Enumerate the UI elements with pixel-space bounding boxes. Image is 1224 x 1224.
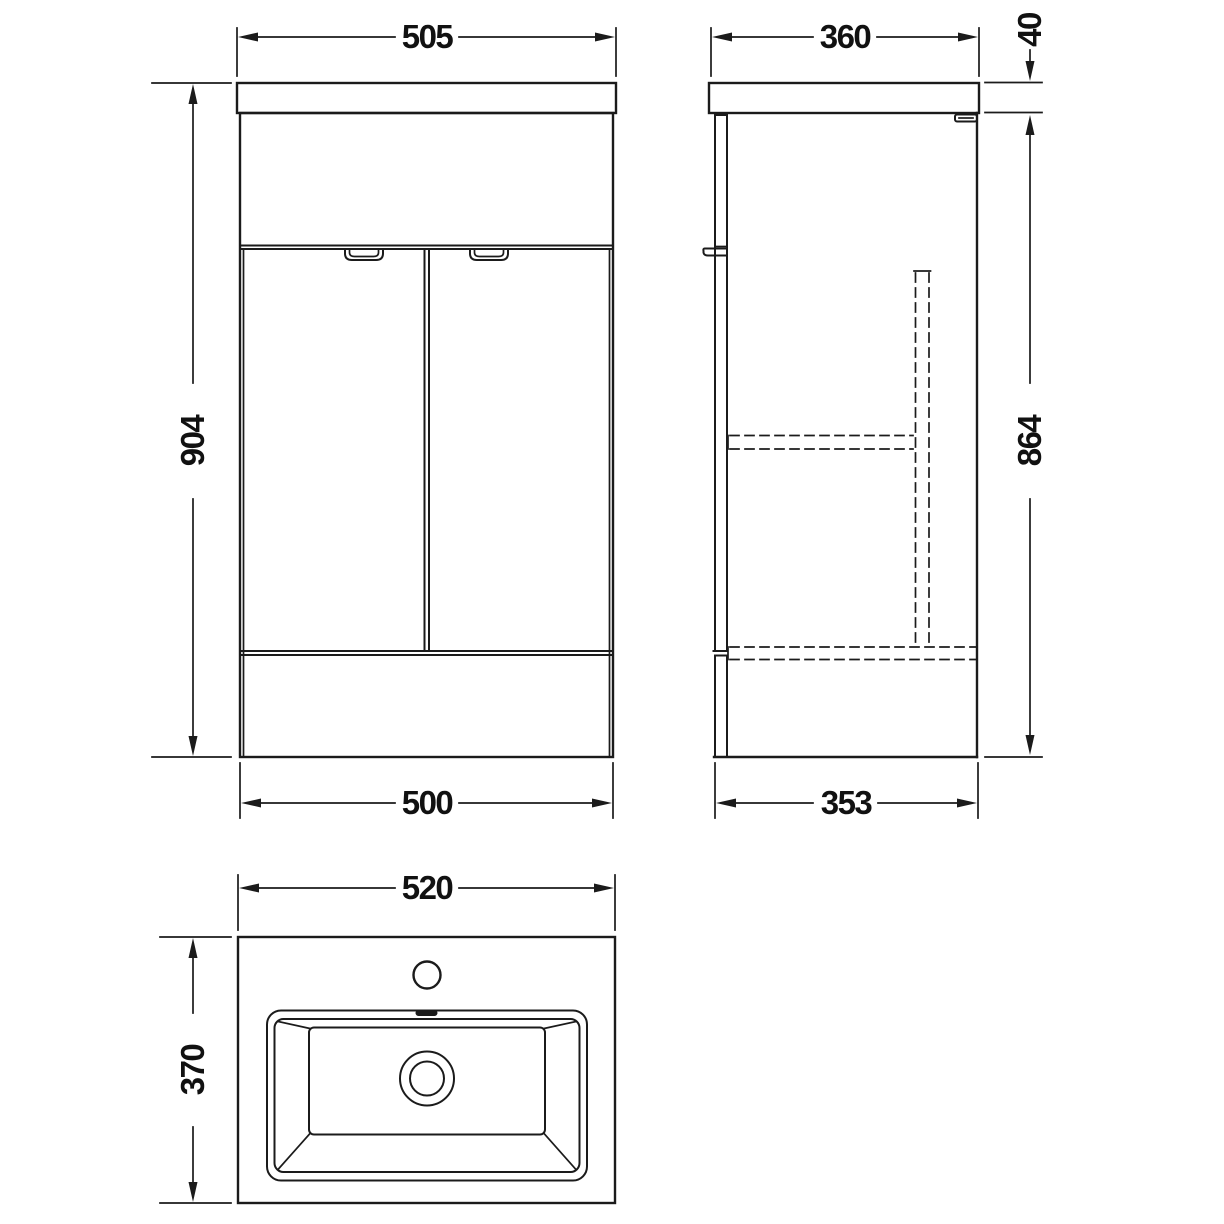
dimension-353: 353: [715, 763, 978, 821]
dimension-904: 904: [152, 83, 231, 757]
arrowhead-left: [241, 799, 261, 808]
dim-label-505: 505: [402, 18, 454, 55]
dimension-370: 370: [160, 937, 231, 1203]
side-plinth-profile: [715, 656, 727, 758]
bowl-flat-bottom: [309, 1028, 545, 1135]
side-door-profile: [703, 115, 727, 651]
front-cabinet-body: [240, 113, 613, 757]
dimension-520: 520: [238, 869, 615, 930]
arrowhead-left: [239, 884, 259, 893]
arrowhead-top: [189, 938, 198, 958]
dimension-40: 40: [985, 13, 1048, 112]
arrowhead-down: [1026, 61, 1035, 81]
arrowhead-left: [716, 799, 736, 808]
arrowhead-left: [712, 33, 732, 42]
arrowhead-right: [957, 799, 977, 808]
arrowhead-left: [238, 33, 258, 42]
arrowhead-right: [592, 799, 612, 808]
dim-label-360: 360: [820, 18, 871, 55]
dim-label-353: 353: [821, 784, 873, 821]
side-hidden-shelf: [728, 436, 913, 450]
side-wall-bracket: [955, 115, 977, 122]
arrowhead-bottom: [189, 736, 198, 756]
arrowhead-bottom: [189, 1182, 198, 1202]
dim-label-864: 864: [1011, 414, 1048, 467]
basin-outer-edge: [238, 937, 615, 1203]
arrowhead-right: [595, 33, 615, 42]
dimension-500: 500: [240, 763, 613, 821]
front-door-bottom-line: [240, 651, 613, 655]
tap-hole: [414, 962, 441, 989]
front-worktop: [237, 83, 616, 113]
dim-label-520: 520: [402, 869, 453, 906]
arrowhead-top: [1026, 115, 1035, 135]
dimension-360: 360: [711, 18, 979, 76]
arrowhead-bottom: [1026, 735, 1035, 755]
arrowhead-right: [594, 884, 614, 893]
front-panel-door-split: [240, 246, 613, 250]
drain-waste: [400, 1052, 454, 1106]
vanity-unit-drawing: 505 904 500: [0, 0, 1224, 1224]
dim-label-40: 40: [1011, 13, 1048, 47]
dimension-864: 864: [985, 115, 1048, 757]
arrowhead-right: [958, 33, 978, 42]
dim-label-370: 370: [174, 1045, 211, 1096]
front-elevation-view: 505 904 500: [152, 18, 616, 821]
right-door-handle: [470, 250, 508, 261]
dimension-505: 505: [237, 18, 616, 76]
side-hidden-base-panel: [728, 647, 976, 660]
side-elevation-view: 360 40 864 353: [703, 13, 1048, 821]
arrowhead-top: [189, 84, 198, 104]
front-door-side-reveals: [244, 249, 610, 757]
side-worktop: [709, 83, 979, 113]
dim-label-904: 904: [174, 414, 211, 467]
front-door-divider: [425, 249, 430, 651]
dim-label-500: 500: [402, 784, 453, 821]
left-door-handle: [345, 250, 383, 261]
basin-plan-view: 520 370: [160, 869, 615, 1203]
technical-drawing-canvas: 505 904 500: [0, 0, 1224, 1224]
side-hidden-waste-pipe: [914, 271, 931, 646]
